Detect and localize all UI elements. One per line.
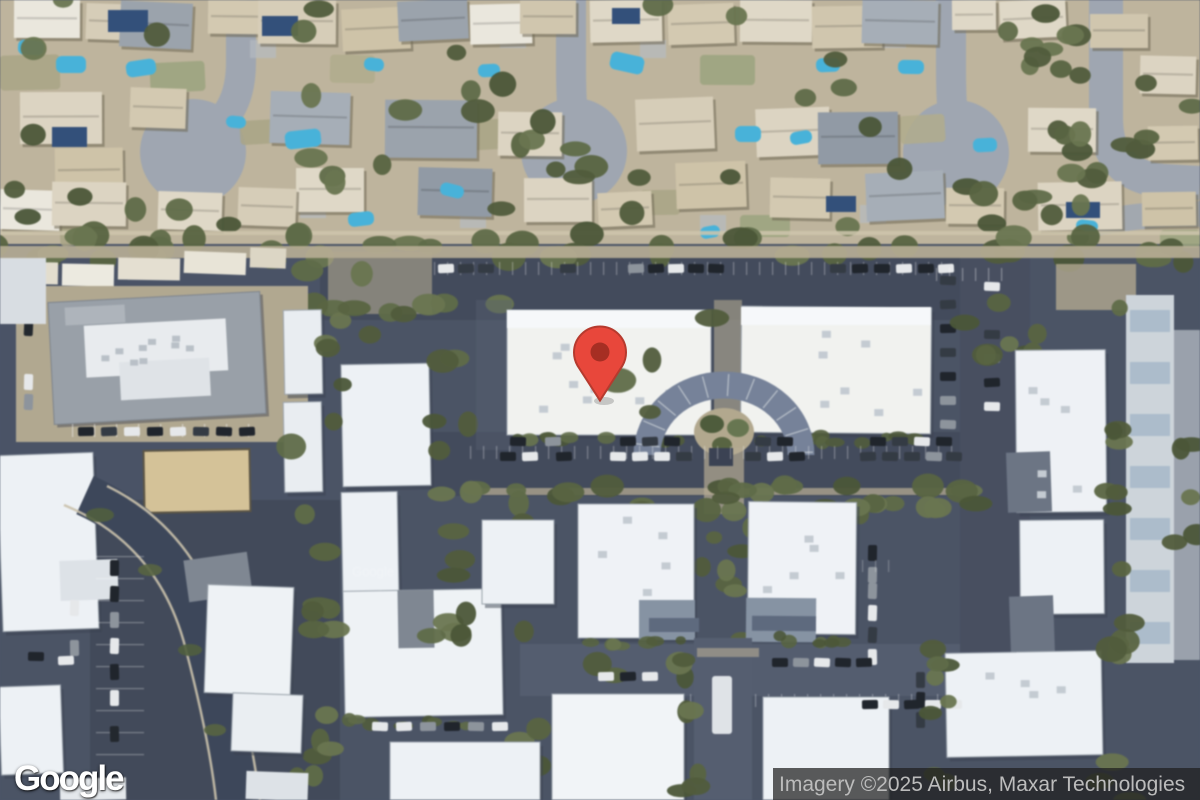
- svg-text:Google: Google: [14, 759, 124, 798]
- svg-text:Imagery ©2025 Airbus, Maxar Te: Imagery ©2025 Airbus, Maxar Technologies: [779, 773, 1185, 796]
